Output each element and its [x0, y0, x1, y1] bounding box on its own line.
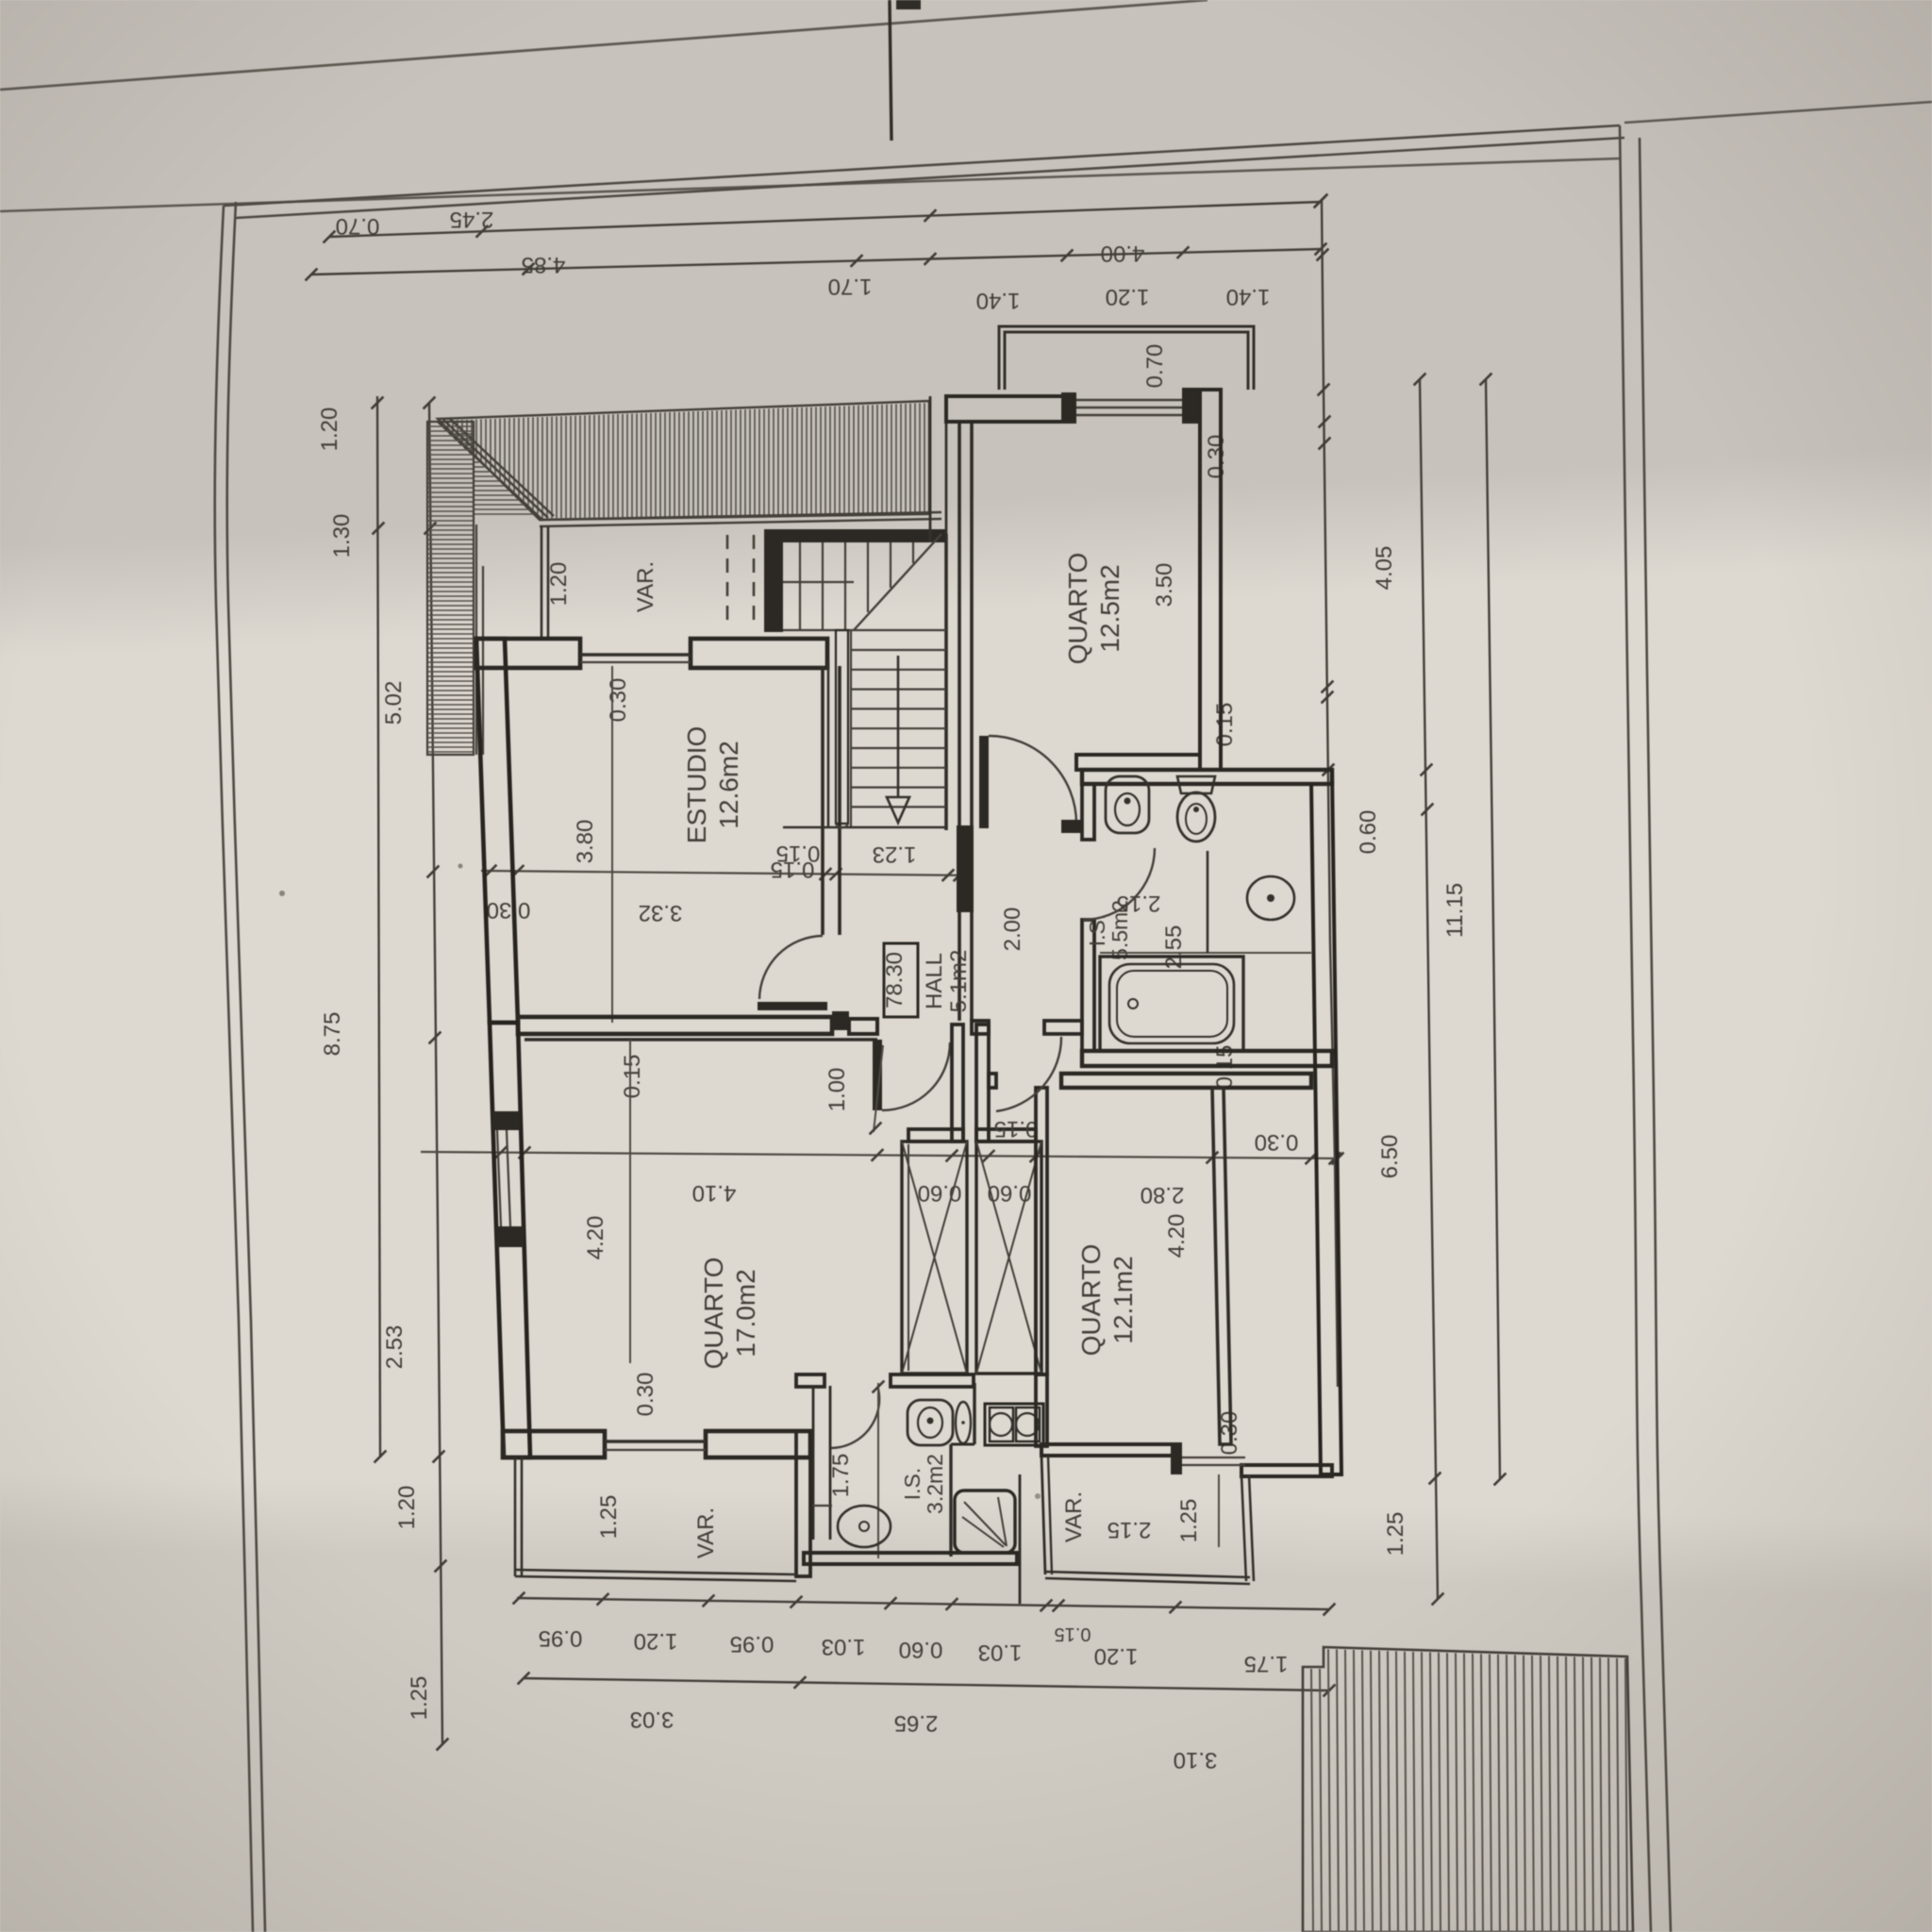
svg-text:1.40: 1.40 — [1226, 284, 1271, 309]
svg-text:2.15: 2.15 — [1117, 891, 1161, 916]
svg-text:2.00: 2.00 — [1000, 908, 1025, 952]
svg-text:0.15: 0.15 — [1212, 703, 1238, 747]
svg-text:1.23: 1.23 — [873, 841, 917, 867]
svg-text:3.2m2: 3.2m2 — [923, 1454, 947, 1514]
svg-text:3.03: 3.03 — [630, 1707, 675, 1732]
svg-text:1.70: 1.70 — [828, 274, 873, 299]
svg-text:1.20: 1.20 — [546, 562, 572, 607]
svg-text:1.25: 1.25 — [1383, 1512, 1408, 1557]
svg-text:1.25: 1.25 — [407, 1676, 432, 1721]
svg-text:2.55: 2.55 — [1161, 925, 1187, 970]
svg-text:12.6m2: 12.6m2 — [714, 741, 743, 828]
svg-text:4.05: 4.05 — [1372, 546, 1397, 591]
svg-text:5.02: 5.02 — [381, 681, 407, 725]
svg-text:2.45: 2.45 — [450, 207, 494, 232]
svg-text:1.20: 1.20 — [634, 1628, 678, 1654]
svg-text:VAR.: VAR. — [633, 561, 658, 612]
svg-text:0.70: 0.70 — [336, 213, 380, 239]
svg-text:0.30: 0.30 — [633, 1373, 658, 1417]
svg-text:4.20: 4.20 — [1164, 1214, 1190, 1258]
svg-text:12.1m2: 12.1m2 — [1108, 1256, 1138, 1343]
svg-text:ESTUDIO: ESTUDIO — [682, 726, 711, 843]
svg-text:0.15: 0.15 — [1055, 1624, 1091, 1644]
svg-text:QUARTO: QUARTO — [699, 1257, 728, 1370]
svg-text:VAR.: VAR. — [1061, 1491, 1087, 1542]
svg-text:2.15: 2.15 — [1108, 1517, 1152, 1542]
svg-text:0.15: 0.15 — [771, 857, 815, 882]
svg-text:4.85: 4.85 — [522, 252, 566, 277]
svg-text:5.1m2: 5.1m2 — [946, 950, 972, 1013]
svg-text:3.10: 3.10 — [1174, 1747, 1218, 1773]
svg-text:4.10: 4.10 — [692, 1180, 737, 1206]
svg-text:17.0m2: 17.0m2 — [731, 1269, 760, 1357]
svg-text:I.S.: I.S. — [900, 1468, 924, 1501]
svg-text:1.40: 1.40 — [976, 288, 1021, 313]
svg-text:1.75: 1.75 — [828, 1454, 854, 1498]
svg-text:HALL: HALL — [922, 953, 947, 1009]
svg-text:12.5m2: 12.5m2 — [1095, 564, 1124, 652]
svg-text:0.15: 0.15 — [620, 1055, 645, 1099]
svg-text:0.60: 0.60 — [1356, 810, 1381, 855]
svg-text:2.53: 2.53 — [382, 1325, 408, 1370]
svg-text:6.50: 6.50 — [1377, 1135, 1403, 1179]
svg-text:1.20: 1.20 — [1094, 1643, 1139, 1669]
svg-text:1.75: 1.75 — [1244, 1651, 1289, 1676]
svg-text:0.30: 0.30 — [1204, 435, 1229, 479]
svg-text:0.95: 0.95 — [730, 1631, 774, 1657]
svg-text:0.15: 0.15 — [994, 1116, 1039, 1141]
svg-text:0.30: 0.30 — [1255, 1129, 1299, 1155]
svg-text:I.S.: I.S. — [1085, 914, 1109, 947]
svg-text:2.65: 2.65 — [894, 1710, 939, 1736]
svg-text:4.20: 4.20 — [583, 1216, 608, 1260]
svg-text:VAR.: VAR. — [693, 1507, 719, 1558]
svg-text:11.15: 11.15 — [1442, 883, 1468, 938]
svg-text:1.03: 1.03 — [978, 1640, 1023, 1665]
svg-text:8.75: 8.75 — [320, 1012, 345, 1057]
svg-text:1.30: 1.30 — [329, 514, 355, 558]
svg-text:0.60: 0.60 — [899, 1637, 943, 1662]
svg-text:1.03: 1.03 — [822, 1634, 866, 1659]
svg-text:1.20: 1.20 — [394, 1486, 420, 1530]
svg-text:3.80: 3.80 — [573, 820, 598, 864]
svg-text:78.30: 78.30 — [882, 952, 908, 1008]
svg-text:2.80: 2.80 — [1141, 1182, 1185, 1207]
svg-text:QUARTO: QUARTO — [1063, 553, 1092, 665]
svg-text:1.25: 1.25 — [1176, 1499, 1202, 1543]
svg-text:1.20: 1.20 — [1106, 284, 1150, 309]
svg-text:0.30: 0.30 — [487, 897, 531, 923]
svg-text:1.20: 1.20 — [317, 408, 342, 452]
svg-text:4.00: 4.00 — [1101, 241, 1145, 266]
svg-text:0.95: 0.95 — [539, 1625, 583, 1651]
svg-text:QUARTO: QUARTO — [1076, 1244, 1106, 1357]
svg-text:1.00: 1.00 — [824, 1068, 850, 1112]
svg-text:3.50: 3.50 — [1152, 563, 1177, 608]
svg-text:0.70: 0.70 — [1142, 344, 1168, 389]
svg-text:0.30: 0.30 — [606, 678, 631, 723]
svg-text:1.25: 1.25 — [596, 1495, 622, 1540]
svg-text:3.32: 3.32 — [639, 900, 683, 925]
